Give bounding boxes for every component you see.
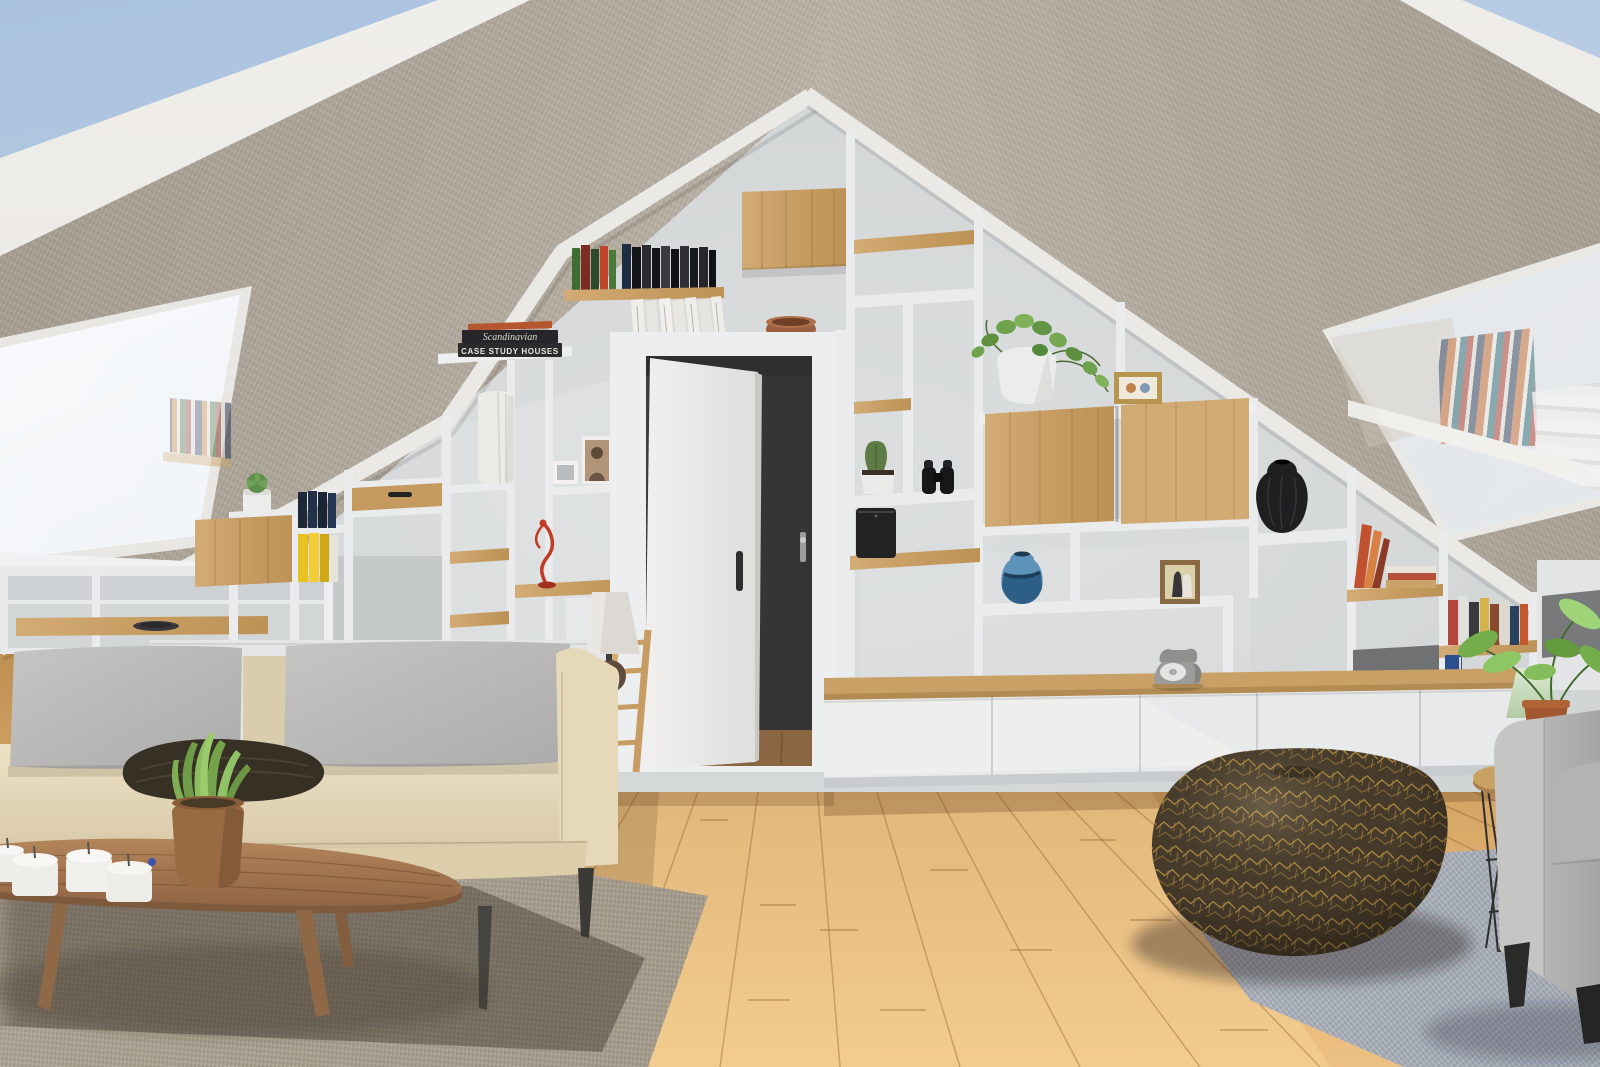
- furniture-layer: [0, 0, 1600, 1067]
- armchair-arm: [1494, 718, 1544, 978]
- blue-marble: [148, 858, 156, 866]
- back-cushion-2: [284, 641, 570, 767]
- gray-armchair: [1425, 710, 1600, 1060]
- sofa-arm: [556, 648, 619, 868]
- sofa-leg: [578, 868, 594, 938]
- attic-room-render: Scandinavian CASE STUDY HOUSES: [0, 0, 1600, 1067]
- armchair-cushion: [1553, 762, 1600, 862]
- bronze-pouf: [1132, 748, 1472, 984]
- armchair-leg: [1504, 942, 1530, 1008]
